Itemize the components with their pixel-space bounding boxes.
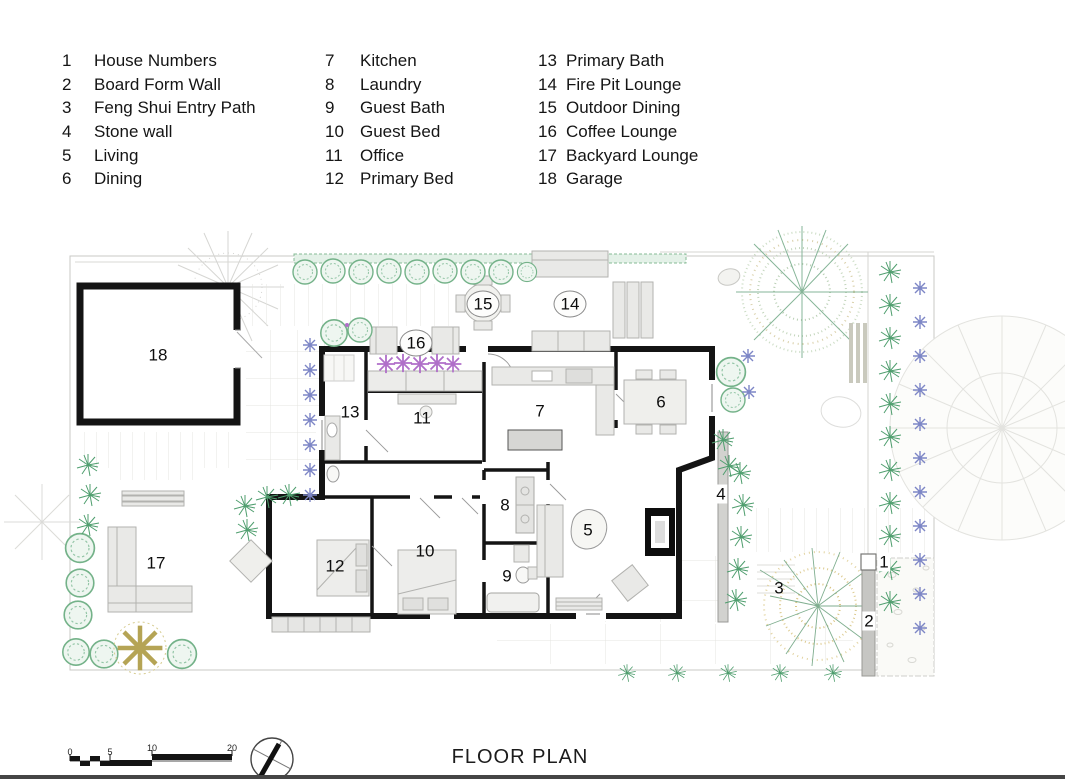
legend-item-outdoor-dining: 15Outdoor Dining xyxy=(538,96,698,120)
room-marker-kitchen: 7 xyxy=(535,403,544,420)
legend-item-guest-bed: 10Guest Bed xyxy=(325,120,454,144)
scale-tick-20: 20 xyxy=(227,743,237,753)
hedge-strip xyxy=(294,254,686,263)
legend-item-office: 11Office xyxy=(325,144,454,168)
room-marker-coffee-lounge: 16 xyxy=(400,330,433,357)
legend-item-primary-bath: 13Primary Bath xyxy=(538,49,698,73)
scale-tick-10: 10 xyxy=(147,743,157,753)
legend-item-living: 5Living xyxy=(62,144,256,168)
room-marker-laundry: 8 xyxy=(500,497,509,514)
hedge-bushes xyxy=(293,259,537,284)
room-marker-board-form-wall: 2 xyxy=(862,612,875,631)
page-title: FLOOR PLAN xyxy=(452,746,589,769)
room-marker-dining: 6 xyxy=(656,394,665,411)
legend-item-dining: 6Dining xyxy=(62,167,256,191)
room-marker-primary-bed: 12 xyxy=(326,558,345,575)
fireplace xyxy=(645,508,675,556)
legend-item-kitchen: 7Kitchen xyxy=(325,49,454,73)
room-marker-garage: 18 xyxy=(149,347,168,364)
room-marker-guest-bed: 10 xyxy=(416,543,435,560)
room-marker-living: 5 xyxy=(583,522,592,539)
scale-tick-0: 0 xyxy=(67,747,72,757)
legend-column-2: 7Kitchen 8Laundry 9Guest Bath 10Guest Be… xyxy=(325,49,454,191)
legend-item-feng-shui-entry-path: 3Feng Shui Entry Path xyxy=(62,96,256,120)
floor-plan-page: 1House Numbers 2Board Form Wall 3Feng Sh… xyxy=(0,0,1065,779)
house-numbers-monument xyxy=(861,554,876,570)
legend-item-laundry: 8Laundry xyxy=(325,73,454,97)
room-marker-primary-bath: 13 xyxy=(341,404,360,421)
legend-item-guest-bath: 9Guest Bath xyxy=(325,96,454,120)
window-bottom-edge xyxy=(0,775,1065,779)
room-marker-feng-shui-entry-path: 3 xyxy=(774,580,783,597)
north-arrow xyxy=(244,731,301,779)
legend-column-1: 1House Numbers 2Board Form Wall 3Feng Sh… xyxy=(62,49,256,191)
legend-column-3: 13Primary Bath 14Fire Pit Lounge 15Outdo… xyxy=(538,49,698,191)
legend-item-primary-bed: 12Primary Bed xyxy=(325,167,454,191)
legend-item-board-form-wall: 2Board Form Wall xyxy=(62,73,256,97)
scale-tick-5: 5 xyxy=(107,747,112,757)
room-marker-office: 11 xyxy=(413,410,431,427)
room-marker-guest-bath: 9 xyxy=(502,568,511,585)
legend-item-backyard-lounge: 17Backyard Lounge xyxy=(538,144,698,168)
legend-item-garage: 18Garage xyxy=(538,167,698,191)
room-marker-outdoor-dining: 15 xyxy=(467,291,500,318)
tan-plant xyxy=(114,622,166,674)
legend-item-house-numbers: 1House Numbers xyxy=(62,49,256,73)
room-marker-fire-pit-lounge: 14 xyxy=(554,291,587,318)
garage xyxy=(80,286,262,422)
room-marker-stone-wall: 4 xyxy=(714,485,727,504)
legend-item-fire-pit-lounge: 14Fire Pit Lounge xyxy=(538,73,698,97)
room-marker-house-numbers: 1 xyxy=(877,553,890,572)
legend-item-stone-wall: 4Stone wall xyxy=(62,120,256,144)
room-marker-backyard-lounge: 17 xyxy=(147,555,166,572)
legend-item-coffee-lounge: 16Coffee Lounge xyxy=(538,120,698,144)
tree-top-right xyxy=(736,226,868,358)
